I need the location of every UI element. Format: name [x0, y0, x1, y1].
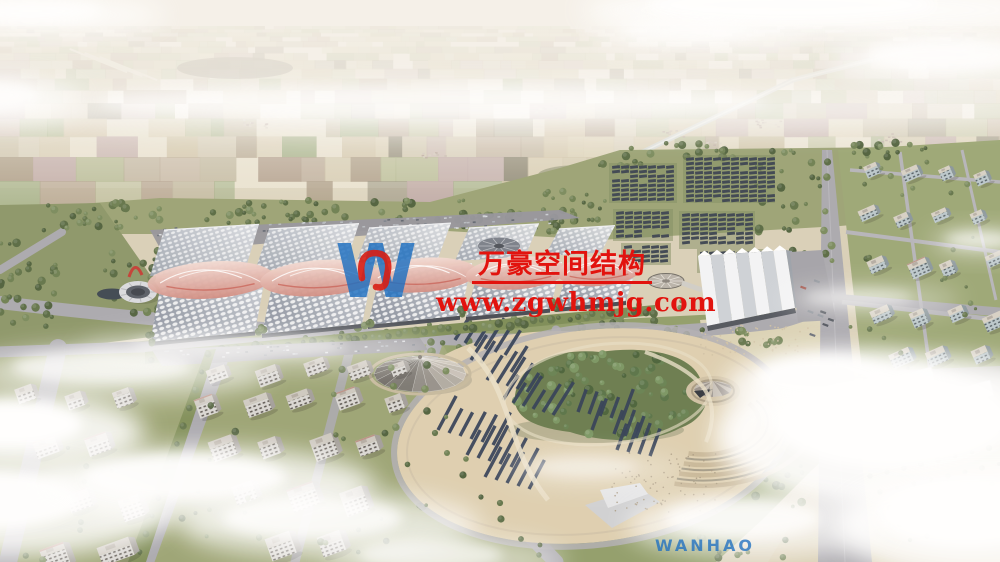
warm-haze-veil [0, 0, 1000, 562]
aerial-rendering-exhibition-center: W WANHAO 万豪空间结构 www.zgwhmjg.com [0, 0, 1000, 562]
scene-canvas [0, 0, 1000, 562]
